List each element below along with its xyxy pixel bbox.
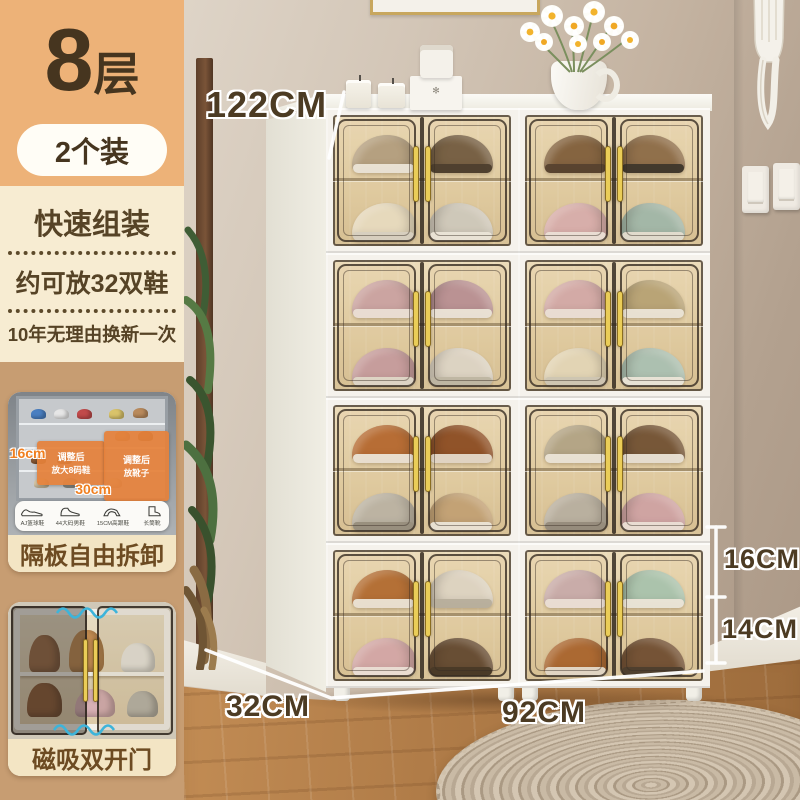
shoe-type: 15CM高跟鞋: [96, 506, 130, 527]
note-line: 放大8码鞋: [37, 464, 106, 476]
cabinet-unit: [326, 543, 518, 688]
dotted-divider: [8, 309, 176, 313]
cabinet-front: [326, 108, 710, 688]
compartment-shelf: [333, 471, 511, 537]
shoe: [621, 135, 685, 173]
boot-icon: [140, 506, 164, 518]
shoe: [621, 425, 685, 463]
feature-list: 快速组装 约可放32双鞋 10年无理由换新一次: [0, 186, 184, 362]
shoe: [429, 280, 493, 318]
candle: [346, 80, 371, 108]
shoe: [352, 425, 416, 463]
compartment-shelf: [333, 326, 511, 392]
shoe-sole: [430, 309, 491, 318]
shoe-sole: [353, 232, 414, 241]
shoe-sole: [622, 454, 683, 463]
shoe-sole: [622, 164, 683, 173]
mini-door-left: [11, 606, 87, 735]
tier-badge: 8层: [0, 10, 184, 110]
shoe: [621, 638, 685, 676]
shoe-sole: [430, 599, 491, 608]
shoe: [544, 493, 608, 531]
feature-item: 快速组装: [34, 201, 150, 243]
detail-cards-block: 调整后 放大8码鞋 调整后 放靴子 16cm 30cm: [0, 362, 184, 800]
compartment-shelf: [525, 616, 703, 682]
product-image: 122CM 32CM 92CM 16CM 14CM 8层 2个装 快速组装 约可…: [0, 0, 800, 800]
shoe-sole: [545, 232, 606, 241]
shoe-type-strip: AJ篮球鞋 44大码男鞋 15CM高跟鞋: [15, 501, 170, 531]
magnetic-door-card: 磁吸双开门: [8, 602, 176, 776]
note-line: 调整后: [37, 450, 106, 463]
dotted-divider: [8, 251, 176, 255]
note-line: 调整后: [104, 453, 170, 466]
shoe: [352, 493, 416, 531]
cabinet-foot: [334, 688, 350, 701]
depth-dimension-label: 32CM: [226, 690, 310, 724]
shoe: [352, 203, 416, 241]
shoe-sole: [622, 522, 683, 531]
shoe: [429, 638, 493, 676]
shoe: [429, 570, 493, 608]
shoe: [544, 135, 608, 173]
compartment-glass: [525, 550, 703, 681]
shoe-type-label: 长筒靴: [144, 518, 161, 527]
lower-shelf-dimension-label: 14CM: [722, 614, 798, 645]
shoe-sole: [622, 599, 683, 608]
shoe-sole: [545, 599, 606, 608]
candle-jar: [420, 45, 453, 78]
shoe: [429, 203, 493, 241]
compartment-glass: [525, 405, 703, 536]
mini-door-handles: [83, 639, 98, 702]
cabinet-unit: [326, 108, 518, 253]
cabinet-foot: [686, 688, 702, 701]
compartment-shelf: [333, 550, 511, 616]
shoe: [544, 638, 608, 676]
compartment-shelf: [525, 471, 703, 537]
shoe-type: 长筒靴: [140, 506, 164, 527]
shoe: [352, 638, 416, 676]
compartment-shelf: [333, 260, 511, 326]
shoe: [621, 280, 685, 318]
shoe: [544, 425, 608, 463]
adjust-note-left: 调整后 放大8码鞋: [37, 441, 106, 485]
feature-item: 约可放32双鞋: [16, 264, 169, 300]
shoe-sole: [430, 232, 491, 241]
shoe-sole: [353, 522, 414, 531]
compartment-glass: [525, 260, 703, 391]
compartment-shelf: [525, 260, 703, 326]
cabinet-unit: [326, 398, 518, 543]
magnetic-wave-icon: [52, 722, 122, 736]
compartment-glass: [333, 115, 511, 246]
cabinet-unit: [518, 108, 710, 253]
shoe: [352, 135, 416, 173]
compartment-glass: [333, 260, 511, 391]
high-heel-icon: [101, 506, 125, 518]
shoe-sole: [430, 522, 491, 531]
shoe: [429, 348, 493, 386]
shoe-sole: [353, 377, 414, 386]
shoe-sole: [353, 454, 414, 463]
shoe: [544, 203, 608, 241]
compartment-shelf: [333, 405, 511, 471]
shoe-sole: [622, 667, 683, 676]
shoe-sole: [545, 454, 606, 463]
compartment-shelf: [333, 181, 511, 247]
compartment-glass: [333, 550, 511, 681]
shoe: [544, 348, 608, 386]
compartment-shelf: [525, 115, 703, 181]
shoe-sole: [622, 232, 683, 241]
shelf-height-small: 16cm: [10, 445, 46, 461]
diffuser-box: [410, 76, 462, 110]
shoe-sole: [545, 522, 606, 531]
shoe-sole: [430, 667, 491, 676]
shoe-sole: [430, 454, 491, 463]
shoe: [429, 493, 493, 531]
compartment-shelf: [333, 616, 511, 682]
shoe-sole: [430, 377, 491, 386]
compartment-shelf: [525, 550, 703, 616]
shoe: [352, 570, 416, 608]
shoe: [429, 425, 493, 463]
shoe: [621, 493, 685, 531]
plant-icon: [184, 190, 236, 670]
compartment-shelf: [525, 405, 703, 471]
switch-rocker[interactable]: [747, 172, 764, 203]
shoe-sole: [545, 309, 606, 318]
shoe: [429, 135, 493, 173]
shoe-sole: [353, 309, 414, 318]
shoe-sole: [622, 377, 683, 386]
cabinet-side-panel: [266, 108, 326, 692]
leather-shoe-icon: [58, 506, 82, 518]
note-line: 放靴子: [104, 467, 170, 479]
tier-unit: 层: [93, 48, 139, 100]
compartment-shelf: [525, 326, 703, 392]
tier-badge-block: 8层 2个装: [0, 0, 184, 186]
shoe: [352, 348, 416, 386]
shelf-height-large: 30cm: [75, 481, 111, 497]
light-switch[interactable]: [773, 163, 800, 210]
magnetic-wave-icon: [55, 605, 125, 619]
compartment-shelf: [525, 181, 703, 247]
shoe-sole: [622, 309, 683, 318]
height-dimension-label: 122CM: [206, 84, 327, 126]
shoe-sole: [545, 164, 606, 173]
compartment-glass: [525, 115, 703, 246]
cabinet-unit: [518, 253, 710, 398]
daisy-bouquet-icon: [508, 0, 648, 74]
shoe: [621, 570, 685, 608]
switch-rocker[interactable]: [778, 169, 795, 200]
partition-card-label: 隔板自由拆卸: [8, 535, 176, 572]
shoe: [544, 570, 608, 608]
shoe-type: AJ篮球鞋: [20, 506, 45, 527]
magnetic-door-photo: [8, 602, 176, 739]
width-dimension-label: 92CM: [502, 696, 586, 730]
shoe-sole: [430, 164, 491, 173]
shoe-type-label: 15CM高跟鞋: [97, 518, 129, 527]
compartment-shelf: [333, 115, 511, 181]
candle: [378, 83, 405, 108]
compartment-glass: [333, 405, 511, 536]
upper-shelf-dimension-label: 16CM: [724, 544, 800, 575]
shoe-sole: [353, 164, 414, 173]
shoe-sole: [545, 667, 606, 676]
mini-door-right: [97, 606, 173, 735]
info-sidebar: 8层 2个装 快速组装 约可放32双鞋 10年无理由换新一次: [0, 0, 184, 800]
wall-phone-icon: [736, 0, 800, 140]
shoe-type: 44大码男鞋: [55, 506, 86, 527]
cabinet-unit: [518, 543, 710, 688]
shoe: [352, 280, 416, 318]
sneaker-icon: [20, 506, 44, 518]
shoe-sole: [353, 599, 414, 608]
shoe: [544, 280, 608, 318]
shoe-sole: [545, 377, 606, 386]
shoe-type-label: AJ篮球鞋: [20, 518, 44, 527]
shoe: [621, 348, 685, 386]
magnetic-card-label: 磁吸双开门: [8, 739, 176, 776]
feature-item: 10年无理由换新一次: [8, 321, 177, 347]
shoe-type-label: 44大码男鞋: [56, 518, 85, 527]
adjust-note-right: 调整后 放靴子: [104, 431, 170, 501]
tier-number: 8: [45, 10, 94, 109]
cabinet-unit: [326, 253, 518, 398]
partition-photo: 调整后 放大8码鞋 调整后 放靴子 16cm 30cm: [8, 392, 176, 535]
partition-feature-card: 调整后 放大8码鞋 调整后 放靴子 16cm 30cm: [8, 392, 176, 572]
shoe: [621, 203, 685, 241]
pack-count-badge: 2个装: [17, 124, 167, 176]
shoe-sole: [353, 667, 414, 676]
cabinet-unit: [518, 398, 710, 543]
light-switch[interactable]: [742, 166, 769, 213]
